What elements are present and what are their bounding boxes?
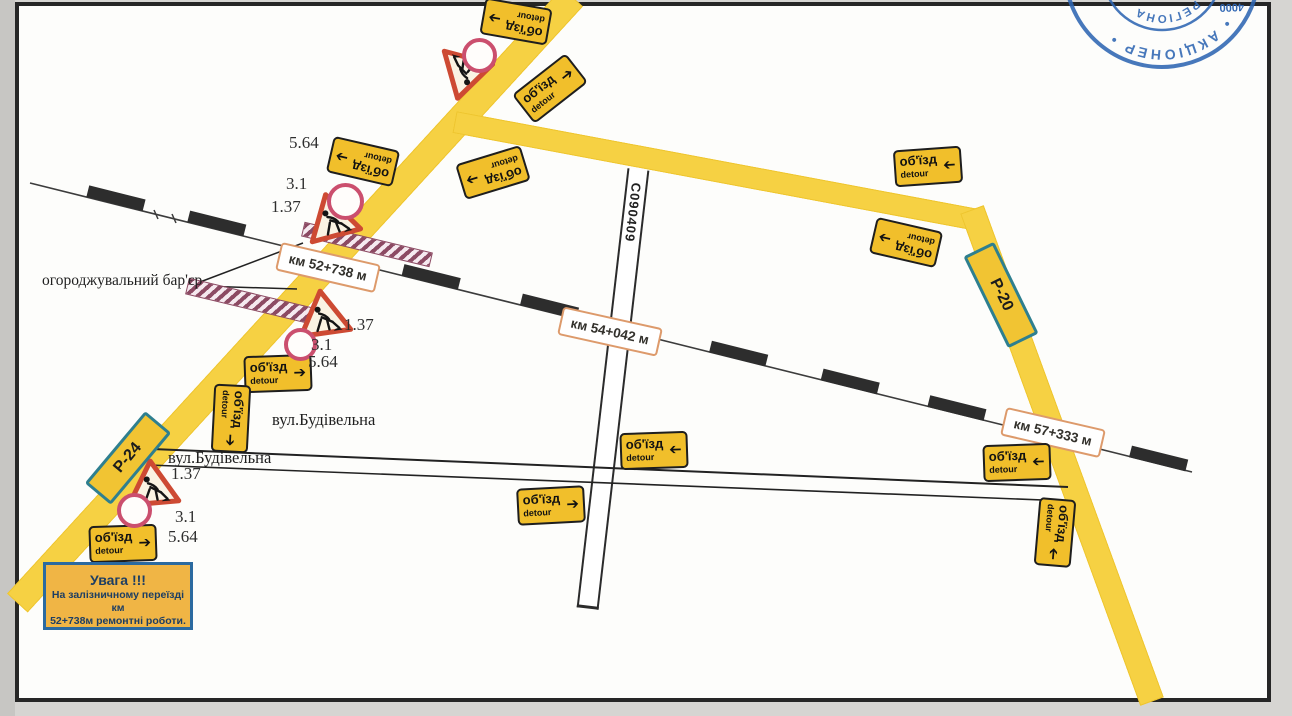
- arrow-left-icon: ➔: [943, 157, 957, 173]
- arrow-right-icon: ➔: [293, 365, 306, 380]
- arrow-right-icon: ➔: [138, 535, 151, 550]
- warning-line-1: На залізничному переїзді км: [46, 589, 190, 615]
- street-name-budivelna: вул.Будівельна: [168, 448, 271, 468]
- detour-sign-near-km57: об'їзд➔ detour: [982, 443, 1051, 482]
- sign-number-5-64: 5.64: [289, 133, 319, 153]
- stamp-outer-text: • АКЦІОНЕР •: [1103, 16, 1238, 71]
- detour-sign-street-rotated-down: об'їзд➔ detour: [211, 384, 252, 454]
- svg-text:РЕГІОНА: РЕГІОНА: [1131, 0, 1203, 28]
- street-name-budivelna: вул.Будівельна: [272, 410, 375, 430]
- svg-text:• АКЦІОНЕР •: • АКЦІОНЕР •: [1103, 16, 1238, 71]
- arrow-up-icon: ➔: [1045, 547, 1061, 561]
- detour-sign-center-left-arrow: об'їзд➔ detour: [619, 431, 688, 470]
- warning-title: Увага !!!: [46, 571, 190, 589]
- sign-number-3-1: 3.1: [175, 507, 196, 527]
- no-entry-circle-sign-north-crossing: [327, 183, 364, 220]
- arrow-right-icon: ➔: [334, 148, 350, 165]
- arrow-right-icon: ➔: [487, 9, 502, 26]
- detour-sign-northeast: об'їзд➔ detour: [893, 146, 963, 188]
- arrow-left-icon: ➔: [1032, 454, 1045, 469]
- detour-sign-center-right-arrow: об'їзд➔ detour: [516, 485, 586, 526]
- arrow-right-icon: ➔: [566, 497, 579, 513]
- arrow-down-icon: ➔: [222, 434, 238, 447]
- stamp-inner-text: РЕГІОНА: [1131, 0, 1203, 28]
- scan-edge: [0, 0, 15, 716]
- stamp-number: 4000: [1219, 1, 1244, 14]
- road-detour-scheme: С090409 км 52+738 м км 54+042 м км 57+33…: [0, 0, 1292, 716]
- warning-line-2: 52+738м ремонтні роботи.: [46, 615, 190, 628]
- no-entry-circle-sign-top: [462, 38, 497, 73]
- warning-note-box: Увага !!! На залізничному переїзді км 52…: [43, 562, 193, 630]
- sign-number-1-37: 1.37: [271, 197, 301, 217]
- detour-sign-southeast-rotated-up: об'їзд➔ detour: [1034, 497, 1077, 568]
- sign-number-1-37: 1.37: [344, 315, 374, 335]
- sign-number-5-64: 5.64: [308, 352, 338, 372]
- arrow-left-icon: ➔: [669, 442, 682, 457]
- barrier-annotation: огороджувальний бар'єр: [42, 272, 202, 290]
- no-entry-circle-sign-southwest: [117, 493, 152, 528]
- detour-sign-southwest: об'їзд➔ detour: [88, 524, 157, 563]
- arrow-right-icon: ➔: [877, 229, 893, 246]
- sign-number-3-1: 3.1: [286, 174, 307, 194]
- official-stamp: • АКЦІОНЕР • РЕГІОНА 4000: [1020, 0, 1292, 80]
- sign-number-5-64: 5.64: [168, 527, 198, 547]
